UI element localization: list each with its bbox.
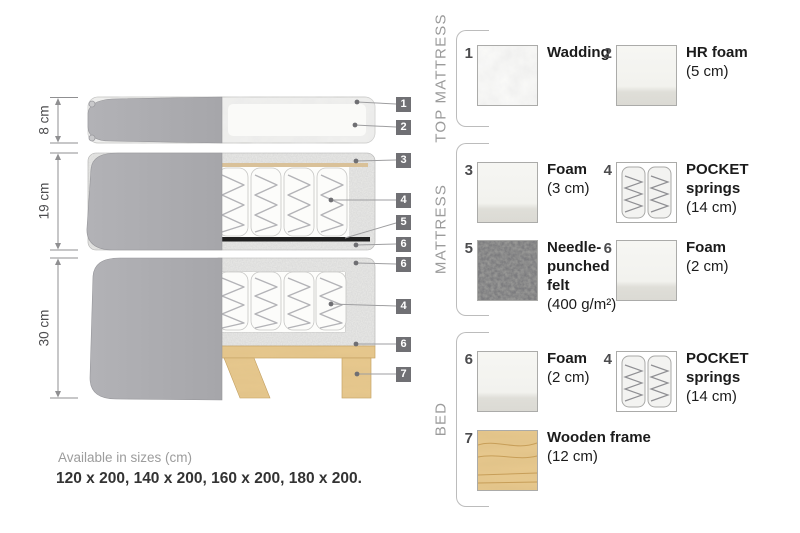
legend-item-size: (5 cm) [686, 62, 794, 81]
pocket-springs-swatch [616, 351, 677, 412]
legend-item-number: 2 [597, 45, 612, 62]
wooden-frame [206, 346, 375, 398]
dimension-label-bed: 30 cm [37, 310, 52, 347]
top-mattress-cover [88, 97, 222, 143]
legend-item-number: 4 [597, 351, 612, 368]
legend-item-name: Wooden frame [547, 428, 655, 447]
legend-item-size: (12 cm) [547, 447, 655, 466]
callout-badge-5: 5 [396, 215, 411, 230]
section-title-mattress: MATTRESS [433, 184, 450, 274]
dimension-label-top-mattress: 8 cm [37, 105, 52, 134]
legend-item-number: 1 [458, 45, 473, 62]
legend-item-name: HR foam [686, 43, 794, 62]
callout-badge-1: 1 [396, 97, 411, 112]
mattress-cover [87, 153, 222, 250]
felt-swatch [477, 240, 538, 301]
callout-badge-6b: 6 [396, 257, 411, 272]
dimension-label-mattress: 19 cm [37, 183, 52, 220]
legend-item-bed-foam-2cm: 6 Foam (2 cm) [477, 351, 538, 412]
callout-badge-6: 6 [396, 237, 411, 252]
pocket-springs-swatch [616, 162, 677, 223]
legend-item-wooden-frame: 7 Wooden frame (12 cm) [477, 430, 538, 491]
section-title-bed: BED [433, 402, 450, 436]
legend-item-pocket-springs: 4 POCKET springs (14 cm) [616, 162, 677, 223]
legend-item-size: (2 cm) [686, 257, 794, 276]
legend-item-number: 3 [458, 162, 473, 179]
legend-item-foam-2cm: 6 Foam (2 cm) [616, 240, 677, 301]
callout-badge-4: 4 [396, 193, 411, 208]
top-mattress-section [88, 97, 375, 143]
foam-swatch [616, 45, 677, 106]
bed-construction-infographic: 8 cm 19 cm 30 cm 1 2 3 4 5 6 6 4 6 7 TOP… [0, 0, 800, 533]
legend-item-number: 4 [597, 162, 612, 179]
section-title-top-mattress: TOP MATTRESS [433, 13, 450, 142]
legend-item-number: 5 [458, 240, 473, 257]
legend-item-number: 6 [458, 351, 473, 368]
legend-item-number: 7 [458, 430, 473, 447]
legend-item-name: POCKET springs [686, 349, 794, 387]
legend-item-name: POCKET springs [686, 160, 794, 198]
legend-item-bed-pocket-springs: 4 POCKET springs (14 cm) [616, 351, 677, 412]
sizes-values: 120 x 200, 140 x 200, 160 x 200, 180 x 2… [56, 470, 362, 488]
legend-item-needle-punched-felt: 5 Needle-punched felt (400 g/m²) [477, 240, 538, 301]
wadding-swatch [477, 45, 538, 106]
bed-section [90, 258, 375, 400]
legend-item-size: (14 cm) [686, 198, 794, 217]
bed-cover [90, 258, 222, 400]
callout-badge-3: 3 [396, 153, 411, 168]
sizes-caption: Available in sizes (cm) [58, 450, 192, 465]
wood-swatch [477, 430, 538, 491]
callout-badge-2: 2 [396, 120, 411, 135]
dimension-arrows [50, 98, 78, 399]
foam-swatch [616, 240, 677, 301]
legend-item-foam-3cm: 3 Foam (3 cm) [477, 162, 538, 223]
foam-swatch [477, 351, 538, 412]
callout-badge-6c: 6 [396, 337, 411, 352]
legend-item-hr-foam: 2 HR foam (5 cm) [616, 45, 677, 106]
legend-item-size: (14 cm) [686, 387, 794, 406]
callout-badge-7: 7 [396, 367, 411, 382]
foam-swatch [477, 162, 538, 223]
legend-item-name: Foam [686, 238, 794, 257]
callout-badge-4b: 4 [396, 299, 411, 314]
legend-item-number: 6 [597, 240, 612, 257]
legend-item-wadding: 1 Wadding [477, 45, 538, 106]
